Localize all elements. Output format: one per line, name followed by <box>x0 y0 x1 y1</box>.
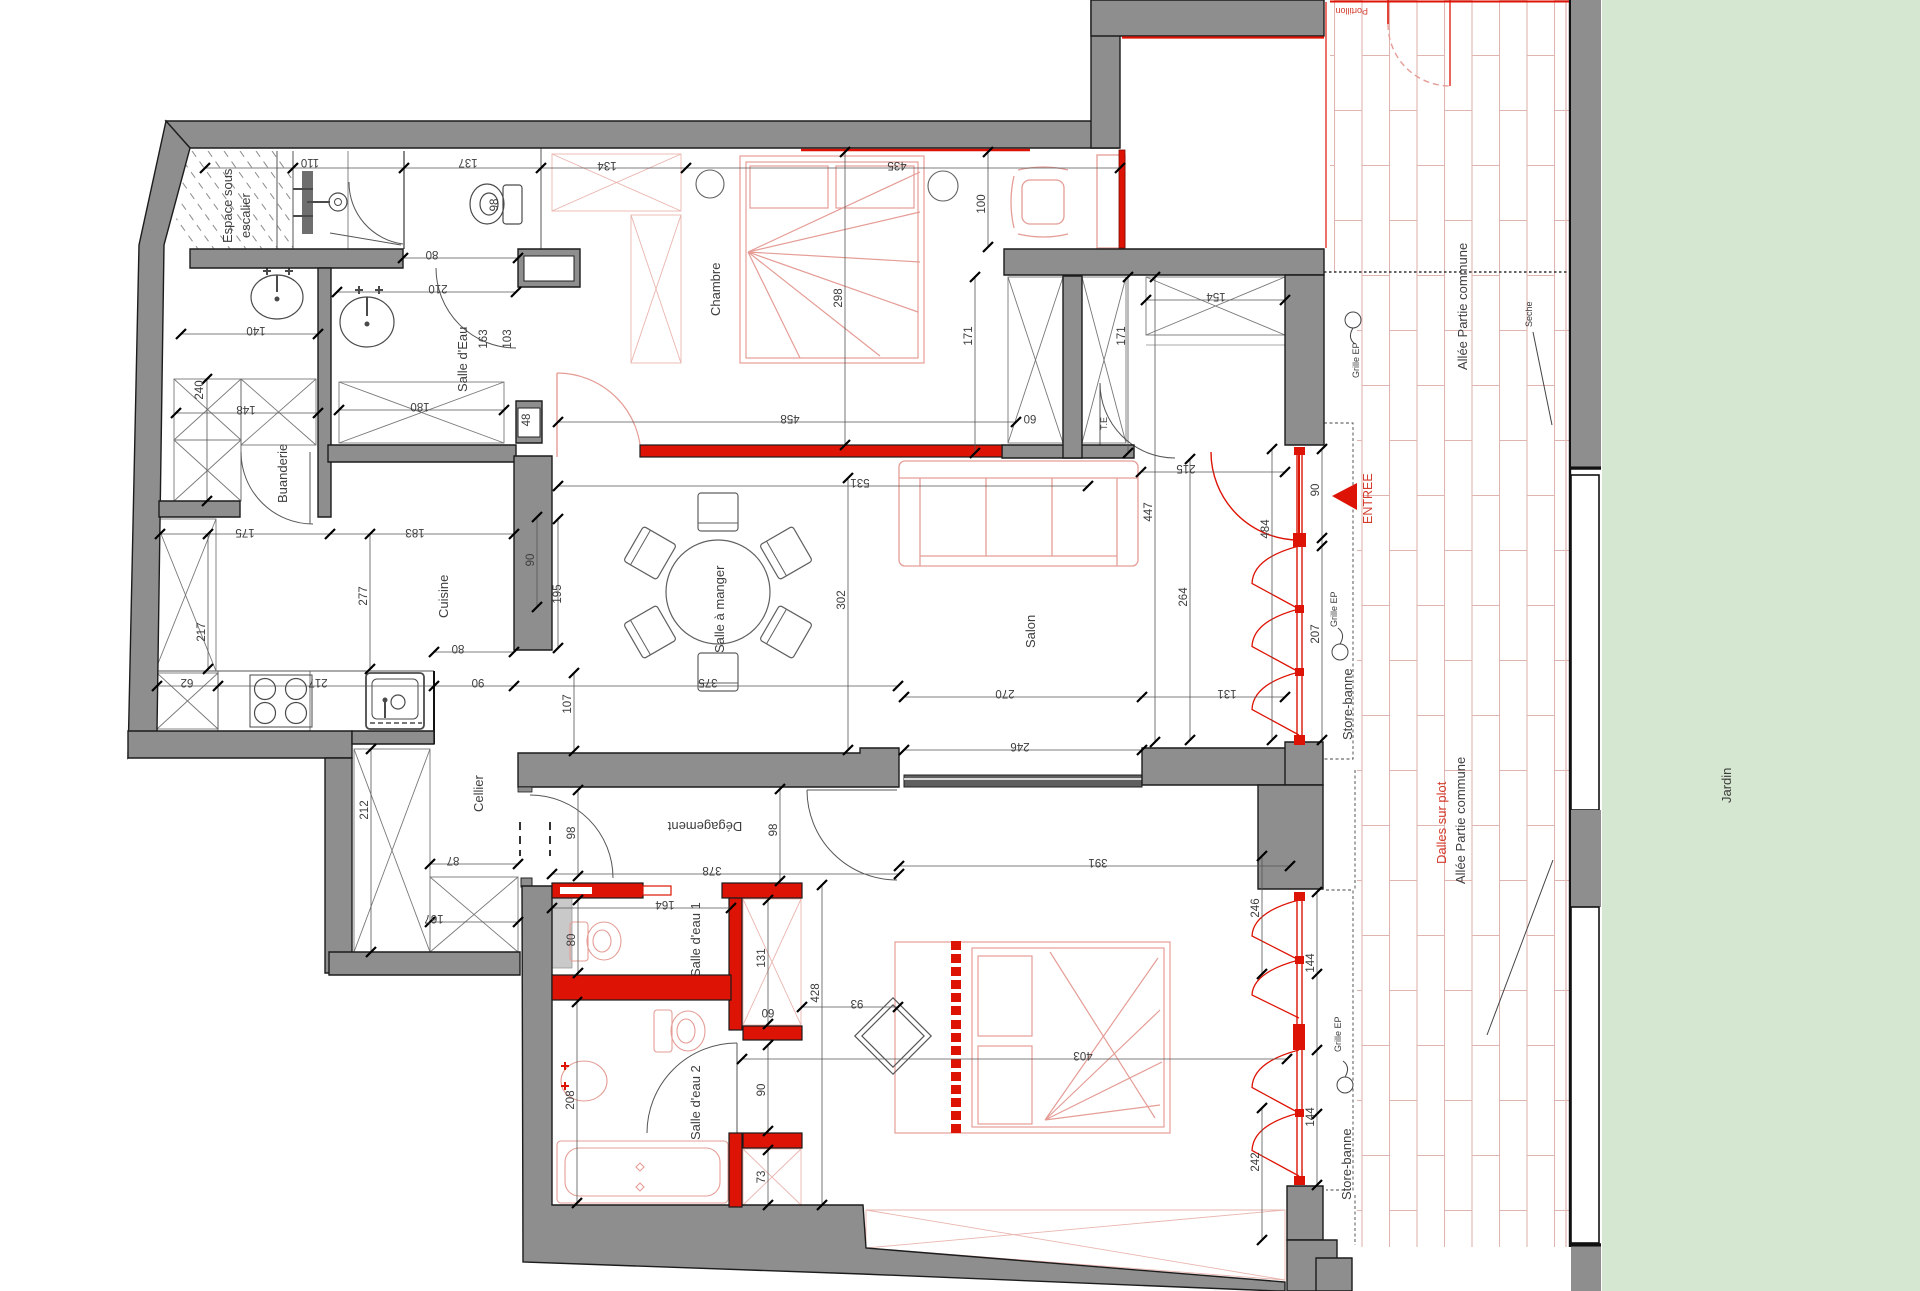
svg-text:435: 435 <box>887 159 906 171</box>
svg-text:60: 60 <box>762 1006 775 1018</box>
svg-text:207: 207 <box>1310 624 1322 643</box>
svg-text:144: 144 <box>1305 953 1317 973</box>
svg-text:Salle d'Eau: Salle d'Eau <box>455 327 470 392</box>
svg-text:Buanderie: Buanderie <box>275 444 290 503</box>
svg-text:167: 167 <box>424 912 443 924</box>
svg-text:73: 73 <box>756 1171 768 1184</box>
svg-text:403: 403 <box>1073 1049 1092 1061</box>
svg-text:93: 93 <box>851 997 864 1009</box>
svg-text:Store-banne: Store-banne <box>1339 1128 1354 1200</box>
svg-text:Espace sous: Espace sous <box>220 168 235 243</box>
svg-text:Cuisine: Cuisine <box>436 575 451 618</box>
svg-text:Allée Partie commune: Allée Partie commune <box>1453 757 1468 884</box>
svg-text:80: 80 <box>566 934 578 947</box>
svg-text:140: 140 <box>246 324 265 336</box>
svg-text:137: 137 <box>458 156 477 168</box>
svg-text:171: 171 <box>1116 326 1128 345</box>
svg-text:87: 87 <box>447 854 460 866</box>
svg-text:90: 90 <box>525 554 537 567</box>
svg-text:458: 458 <box>780 412 799 424</box>
svg-text:103: 103 <box>502 329 514 348</box>
svg-text:378: 378 <box>702 864 721 876</box>
svg-text:90: 90 <box>1310 484 1322 497</box>
svg-text:T.E: T.E <box>1099 417 1109 430</box>
svg-text:Salon: Salon <box>1023 615 1038 648</box>
svg-text:242: 242 <box>1250 1152 1262 1171</box>
svg-text:60: 60 <box>1024 412 1037 424</box>
svg-text:80: 80 <box>426 248 439 260</box>
svg-text:447: 447 <box>1143 502 1155 521</box>
svg-text:531: 531 <box>850 476 869 488</box>
svg-text:217: 217 <box>196 622 208 641</box>
svg-text:131: 131 <box>756 948 768 967</box>
svg-text:212: 212 <box>359 800 371 819</box>
svg-text:302: 302 <box>836 590 848 609</box>
svg-text:107: 107 <box>562 694 574 713</box>
svg-text:171: 171 <box>963 326 975 345</box>
svg-text:375: 375 <box>698 676 717 688</box>
svg-text:154: 154 <box>1206 290 1226 302</box>
svg-text:164: 164 <box>655 898 675 910</box>
svg-text:110: 110 <box>301 156 319 168</box>
svg-text:144: 144 <box>1305 1107 1317 1127</box>
svg-text:240: 240 <box>194 380 206 399</box>
svg-text:90: 90 <box>756 1084 768 1097</box>
svg-text:131: 131 <box>1217 687 1236 699</box>
svg-text:298: 298 <box>833 288 845 307</box>
svg-text:148: 148 <box>236 403 255 415</box>
svg-text:210: 210 <box>428 282 447 294</box>
svg-text:Seche: Seche <box>1524 301 1534 327</box>
svg-text:Dégagement: Dégagement <box>667 819 742 834</box>
svg-text:134: 134 <box>597 159 617 171</box>
svg-text:escalier: escalier <box>238 193 253 238</box>
svg-text:217: 217 <box>308 676 327 688</box>
svg-text:246: 246 <box>1250 898 1262 917</box>
svg-text:Store-banne: Store-banne <box>1340 668 1355 740</box>
svg-text:100: 100 <box>976 194 988 213</box>
svg-text:Portillon: Portillon <box>1335 6 1368 16</box>
svg-text:Salle à manger: Salle à manger <box>712 565 727 653</box>
svg-text:98: 98 <box>489 199 501 212</box>
svg-text:98: 98 <box>768 824 780 837</box>
svg-text:90: 90 <box>472 676 485 688</box>
svg-text:484: 484 <box>1260 519 1272 539</box>
svg-text:175: 175 <box>235 526 254 538</box>
svg-text:208: 208 <box>565 1090 577 1109</box>
svg-text:98: 98 <box>566 827 578 840</box>
svg-text:180: 180 <box>410 400 429 412</box>
svg-text:Dalles sur plot: Dalles sur plot <box>1434 781 1449 864</box>
svg-text:246: 246 <box>1010 740 1029 752</box>
svg-text:183: 183 <box>405 526 424 538</box>
svg-text:Salle d'eau 1: Salle d'eau 1 <box>688 902 703 977</box>
svg-text:Chambre: Chambre <box>708 263 723 316</box>
svg-text:Grille EP: Grille EP <box>1351 342 1361 378</box>
svg-text:277: 277 <box>358 586 370 605</box>
svg-text:ENTREE: ENTREE <box>1361 473 1375 524</box>
svg-text:163: 163 <box>478 329 490 348</box>
svg-text:62: 62 <box>181 676 194 688</box>
svg-text:215: 215 <box>1176 462 1195 474</box>
svg-text:264: 264 <box>1178 587 1190 607</box>
svg-text:Allée Partie commune: Allée Partie commune <box>1455 243 1470 370</box>
svg-text:428: 428 <box>810 983 822 1002</box>
svg-text:Jardin: Jardin <box>1719 768 1734 803</box>
svg-text:270: 270 <box>995 687 1014 699</box>
svg-text:Cellier: Cellier <box>471 774 486 812</box>
svg-text:195: 195 <box>552 584 564 603</box>
svg-text:Grille EP: Grille EP <box>1333 1016 1343 1052</box>
svg-text:48: 48 <box>521 414 533 427</box>
svg-text:80: 80 <box>452 642 465 654</box>
svg-text:391: 391 <box>1088 856 1107 868</box>
svg-text:Grille EP: Grille EP <box>1329 591 1339 627</box>
svg-text:Salle d'eau 2: Salle d'eau 2 <box>688 1065 703 1140</box>
